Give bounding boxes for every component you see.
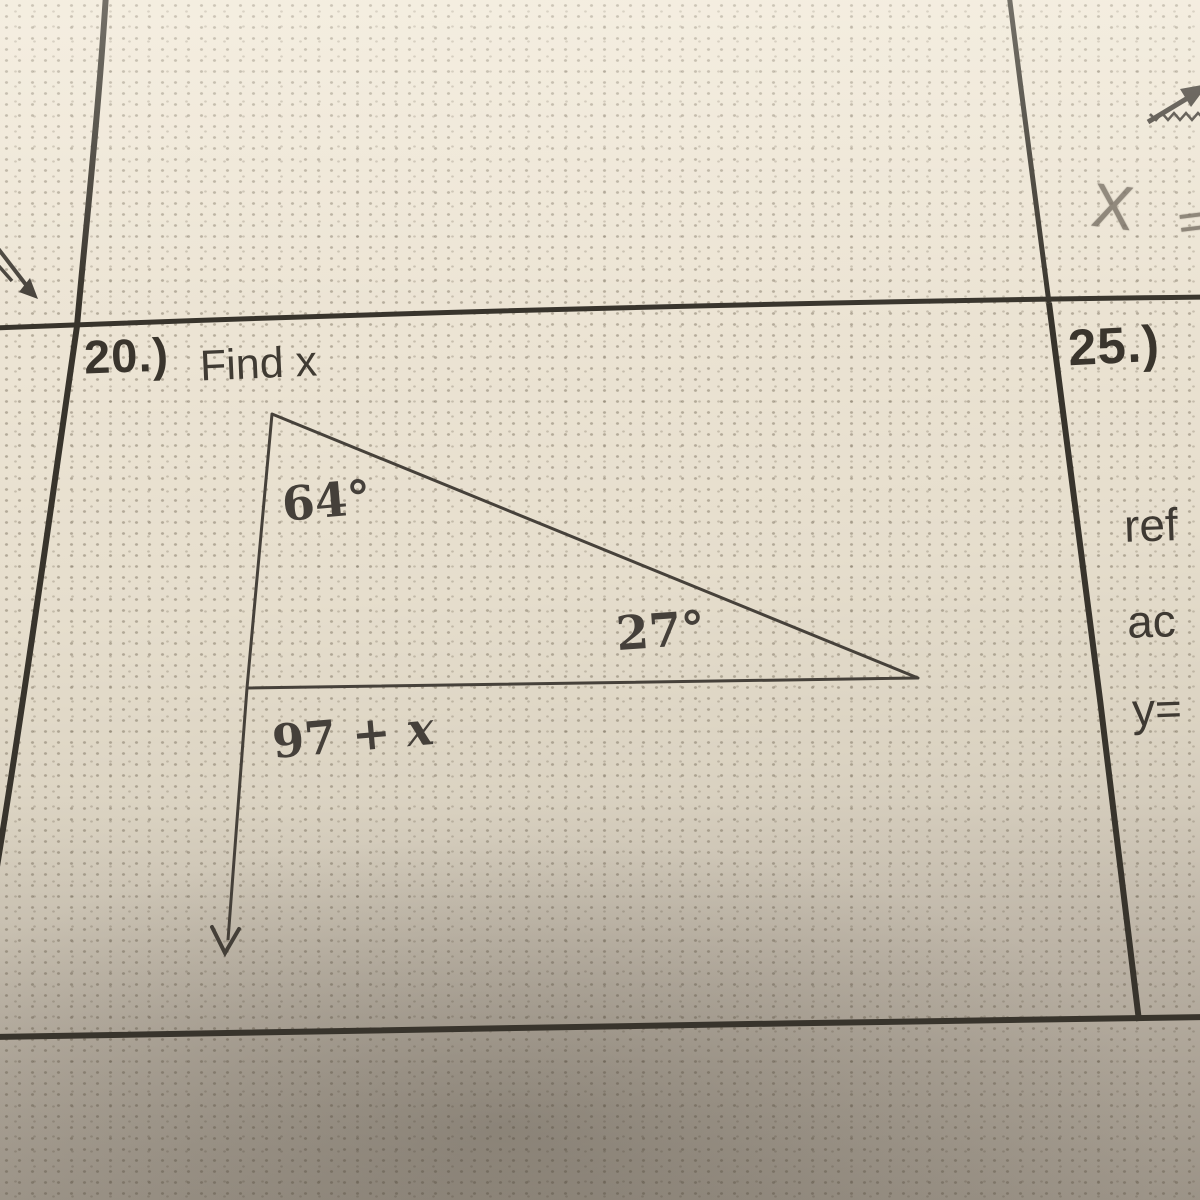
problem-25-text-line-1: ref: [1123, 497, 1179, 553]
row-border-bottom: [0, 1017, 1200, 1037]
problem-25-text-line-3: y=: [1131, 681, 1183, 737]
handwritten-x: X: [1088, 170, 1138, 246]
problem-25-text-line-2: ac: [1126, 593, 1176, 649]
problem-20-number: 20.): [83, 327, 170, 385]
column-border-right-lower: [1049, 303, 1139, 1021]
angle-label-apex: 64°: [280, 470, 373, 533]
triangle: [247, 414, 918, 688]
worksheet-photo: 20.) Find x 64° 27° 97 + x 25.) ref ac y…: [0, 0, 1200, 1200]
extended-ray: [228, 688, 247, 940]
column-border-left-upper: [77, 0, 106, 326]
angle-label-base: 27°: [614, 601, 707, 662]
column-border-left-lower: [0, 326, 77, 885]
figure-drawing-layer: [0, 0, 1200, 1200]
down-arrowhead-icon: [212, 927, 239, 953]
exterior-angle-variable: x: [404, 701, 436, 757]
left-neighbor-arrow-shaft: [0, 238, 30, 290]
problem-25-number: 25.): [1067, 314, 1162, 378]
row-border-top: [0, 297, 1200, 328]
column-border-right-upper: [1009, 0, 1049, 303]
problem-20-title: Find x: [199, 337, 318, 391]
